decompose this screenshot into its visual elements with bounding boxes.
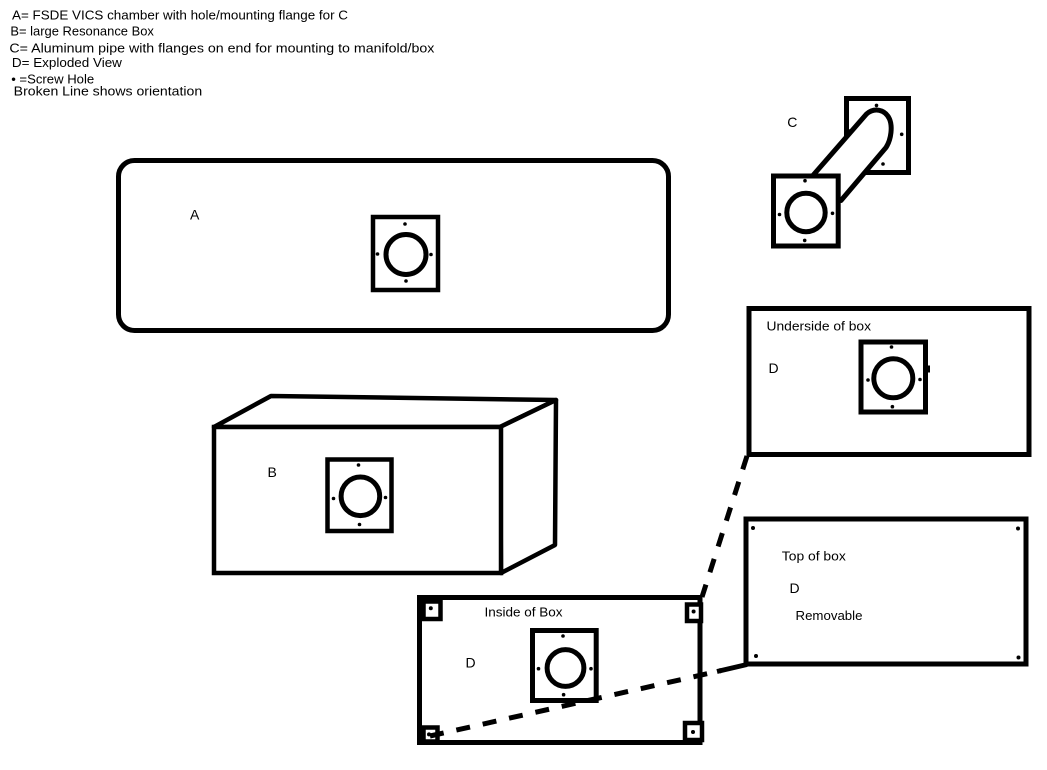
svg-text:D: D [769,360,779,376]
svg-text:D: D [466,655,476,671]
svg-text:B: B [268,464,277,480]
svg-text:Removable: Removable [796,608,863,623]
svg-text:A: A [190,207,200,223]
svg-text:Top of box: Top of box [782,549,846,564]
svg-text:C= Aluminum pipe with flanges: C= Aluminum pipe with flanges on end for… [9,40,434,55]
svg-text:Broken Line shows orientation: Broken Line shows orientation [14,84,203,99]
svg-text:Underside of box: Underside of box [767,319,872,334]
svg-text:C: C [787,114,797,130]
svg-text:Inside of Box: Inside of Box [485,605,563,620]
svg-text:B= large Resonance Box: B= large Resonance Box [10,23,154,38]
svg-text:A= FSDE VICS chamber with hole: A= FSDE VICS chamber with hole/mounting … [12,7,348,22]
svg-text:D= Exploded View: D= Exploded View [12,55,122,70]
svg-text:D: D [790,580,800,596]
